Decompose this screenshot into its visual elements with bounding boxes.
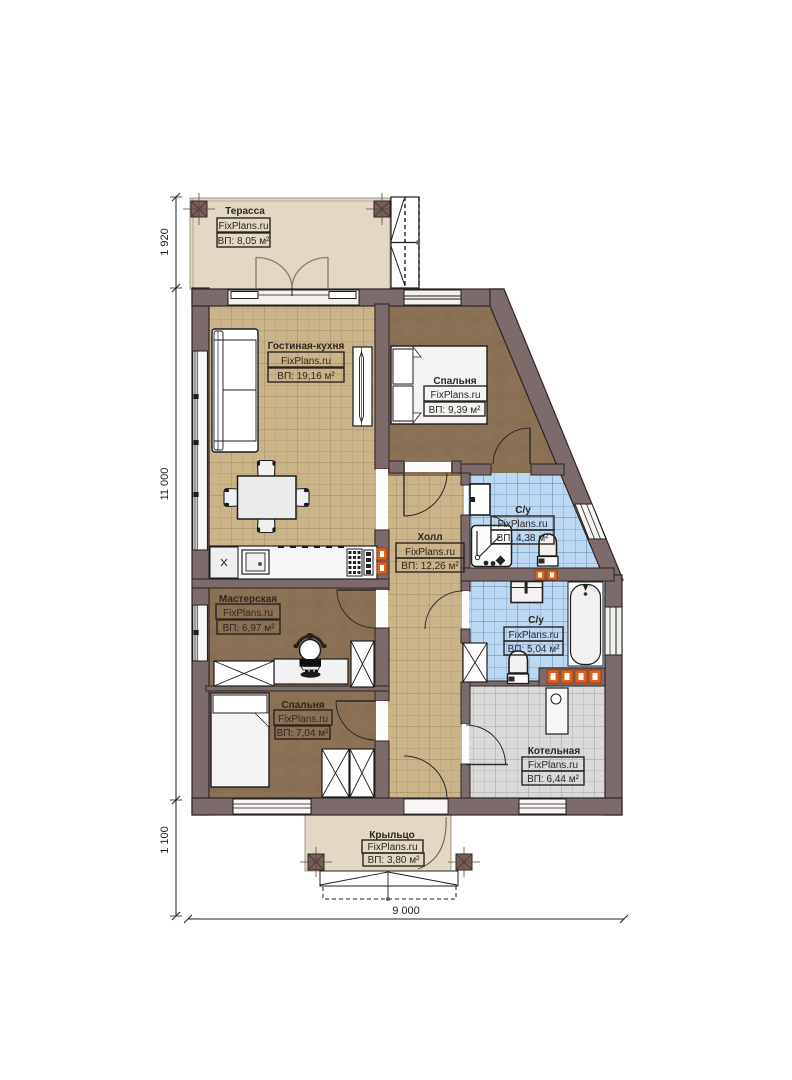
svg-text:ВП: 3,80 м²: ВП: 3,80 м²: [368, 855, 421, 866]
svg-text:FixPlans.ru: FixPlans.ru: [528, 760, 578, 771]
svg-text:С/у: С/у: [515, 505, 531, 516]
svg-text:ВП: 19,16 м²: ВП: 19,16 м²: [277, 371, 335, 382]
svg-text:FixPlans.ru: FixPlans.ru: [278, 714, 328, 725]
svg-text:FixPlans.ru: FixPlans.ru: [497, 519, 547, 530]
svg-text:FixPlans.ru: FixPlans.ru: [281, 356, 331, 367]
svg-text:ВП: 6,97 м²: ВП: 6,97 м²: [223, 623, 276, 634]
svg-text:FixPlans.ru: FixPlans.ru: [218, 221, 268, 232]
svg-text:ВП: 12,26 м²: ВП: 12,26 м²: [401, 561, 459, 572]
svg-text:9 000: 9 000: [392, 905, 420, 917]
svg-text:1 100: 1 100: [159, 826, 171, 854]
svg-text:FixPlans.ru: FixPlans.ru: [430, 390, 480, 401]
svg-text:FixPlans.ru: FixPlans.ru: [223, 608, 273, 619]
svg-text:11 000: 11 000: [159, 468, 171, 501]
svg-text:FixPlans.ru: FixPlans.ru: [367, 842, 417, 853]
svg-text:ВП: 8,05 м²: ВП: 8,05 м²: [218, 236, 271, 247]
svg-text:Гостиная-кухня: Гостиная-кухня: [268, 341, 345, 352]
svg-text:ВП: 6,44 м²: ВП: 6,44 м²: [527, 774, 580, 785]
svg-text:Холл: Холл: [417, 532, 442, 543]
svg-text:С/у: С/у: [528, 615, 544, 626]
svg-text:Терасса: Терасса: [225, 206, 265, 217]
svg-text:ВП: 5,04 м²: ВП: 5,04 м²: [508, 644, 561, 655]
svg-text:1 920: 1 920: [159, 228, 171, 256]
svg-text:ВП: 4,38 м²: ВП: 4,38 м²: [497, 533, 550, 544]
svg-text:ВП: 7,04 м²: ВП: 7,04 м²: [277, 728, 330, 739]
svg-text:Котельная: Котельная: [528, 746, 581, 757]
svg-text:FixPlans.ru: FixPlans.ru: [508, 630, 558, 641]
svg-text:FixPlans.ru: FixPlans.ru: [405, 547, 455, 558]
svg-text:ВП: 9,39 м²: ВП: 9,39 м²: [429, 405, 482, 416]
